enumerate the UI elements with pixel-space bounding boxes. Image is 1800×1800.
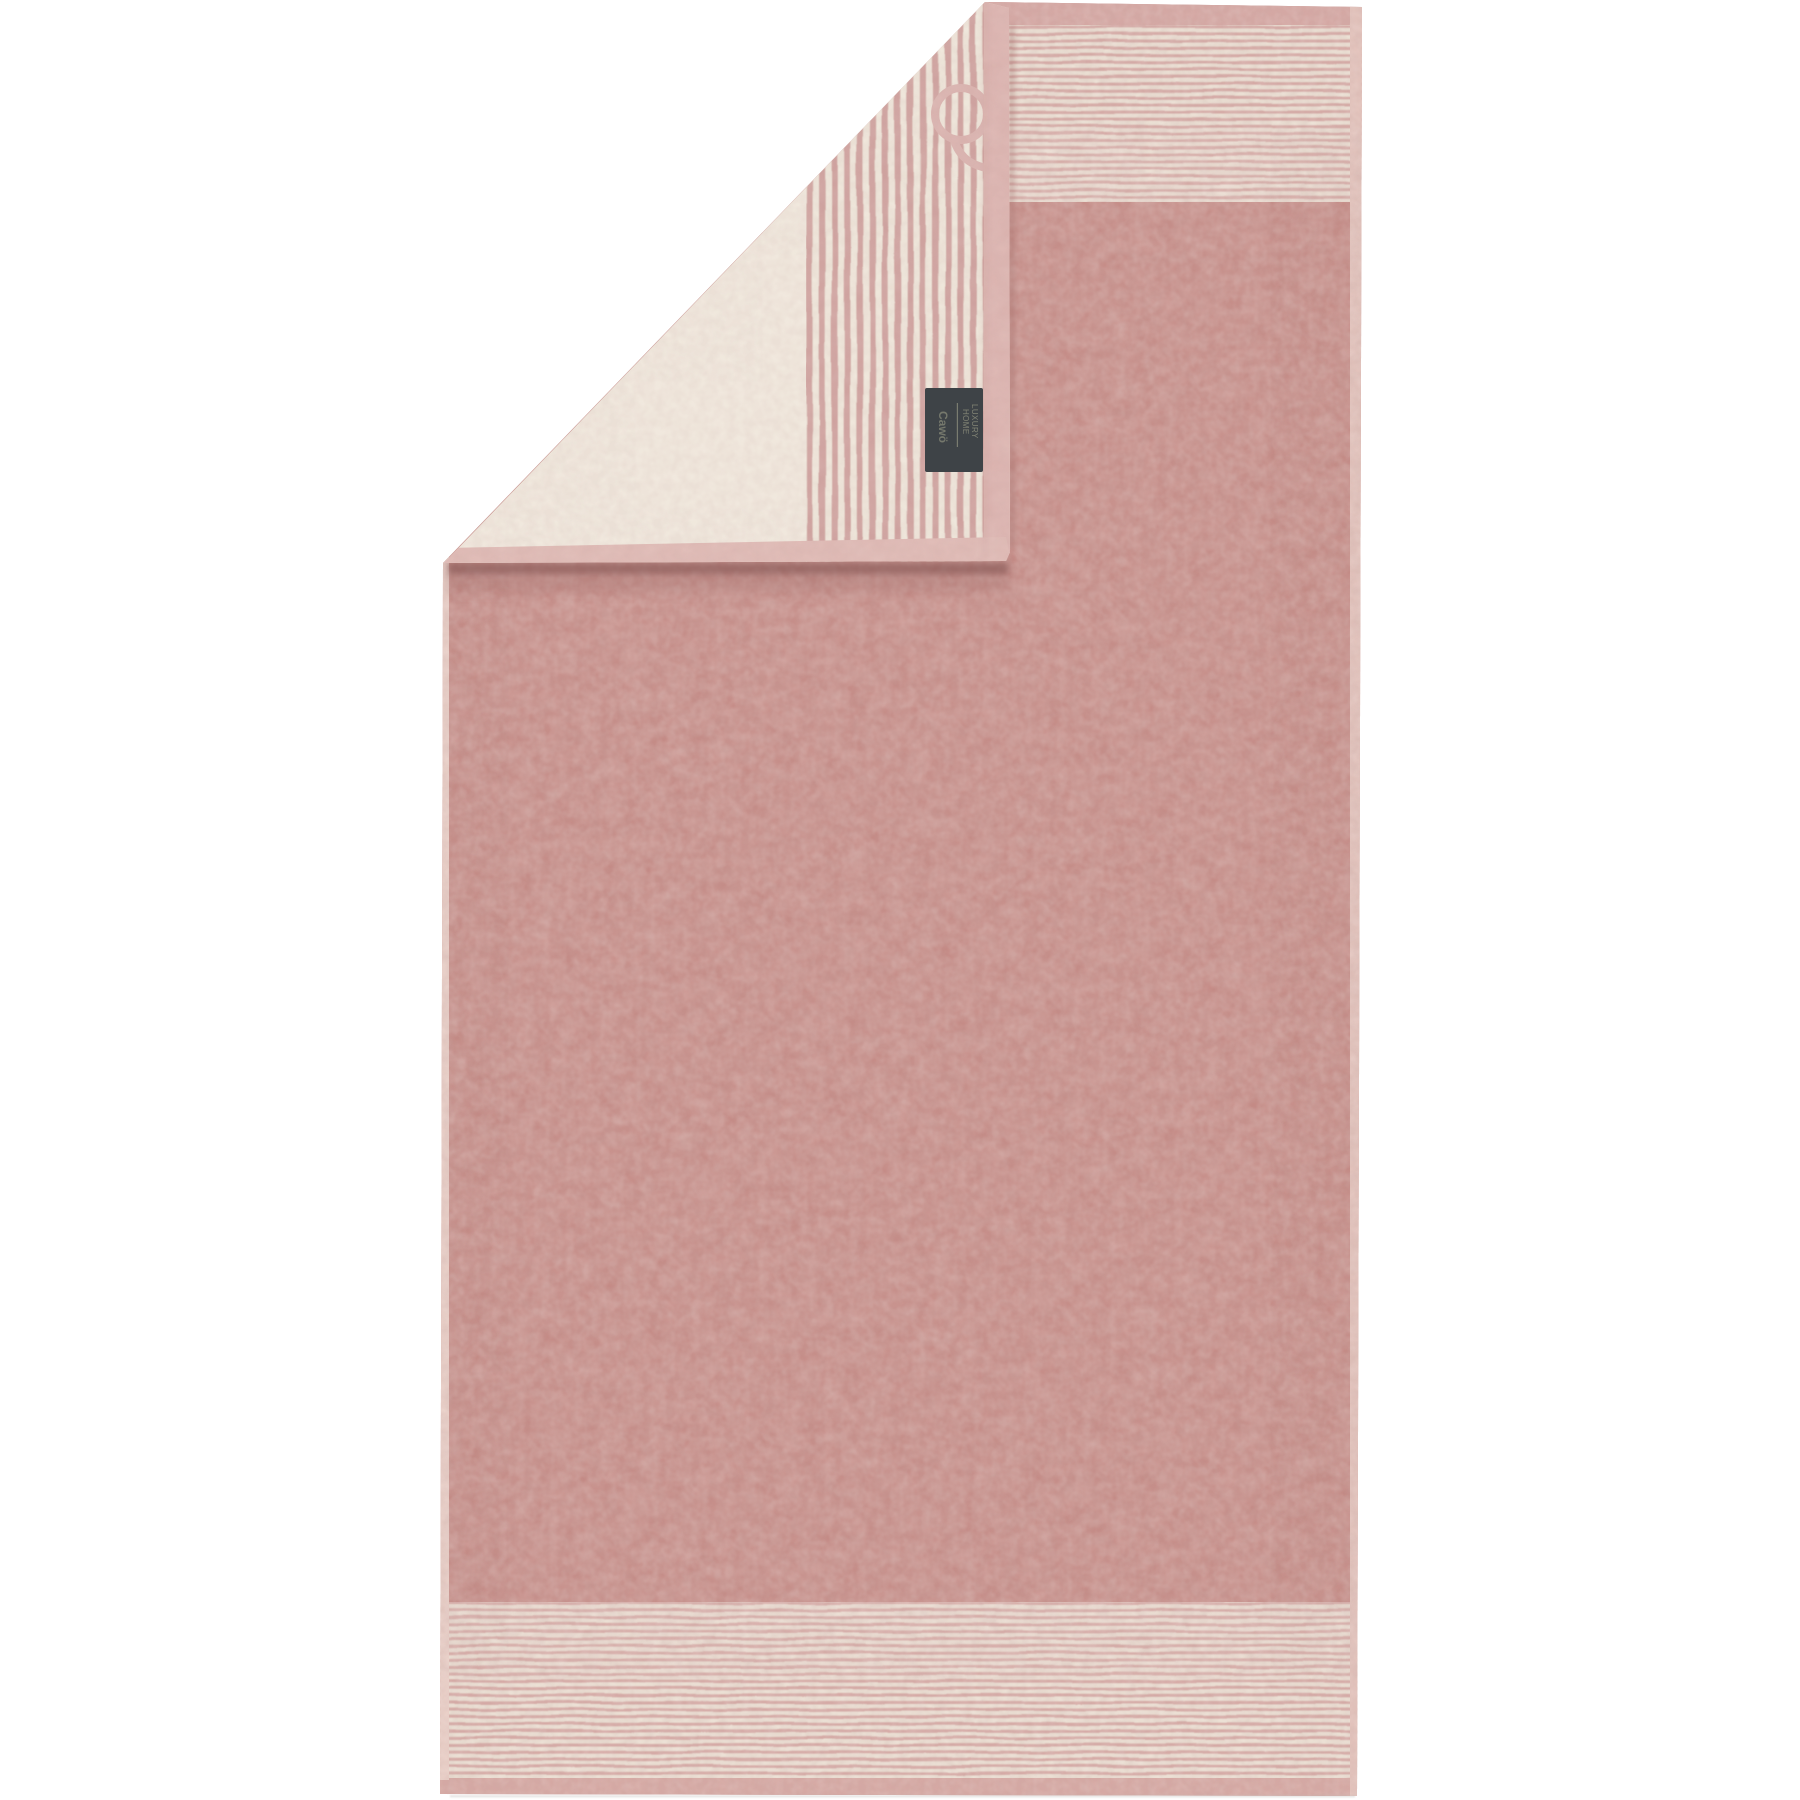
svg-text:Cawö: Cawö [936,411,950,443]
svg-text:LUXURY: LUXURY [970,404,979,439]
svg-text:HOME: HOME [961,409,970,435]
